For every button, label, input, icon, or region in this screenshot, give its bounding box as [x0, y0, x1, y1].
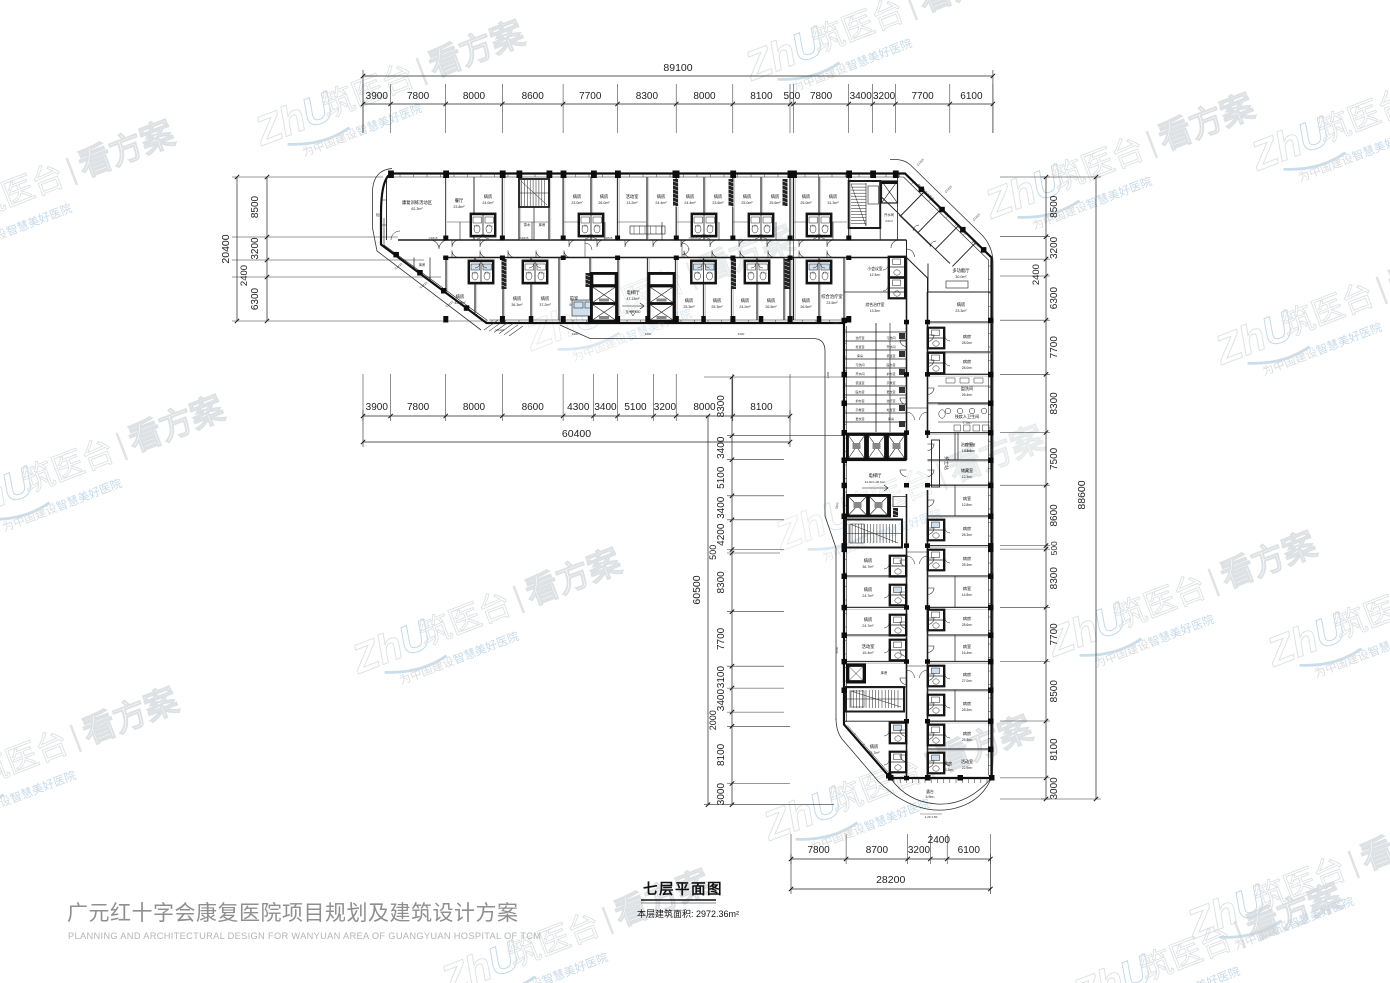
svg-text:8000: 8000 [693, 402, 716, 413]
svg-text:3.7m: 3.7m [474, 224, 480, 228]
svg-text:康复训练活动区: 康复训练活动区 [402, 199, 433, 206]
svg-text:88600: 88600 [1076, 480, 1088, 509]
svg-text:病房: 病房 [963, 730, 971, 736]
svg-text:库房: 库房 [888, 416, 894, 421]
svg-text:至+26.450: 至+26.450 [626, 310, 641, 314]
svg-text:4.0m²: 4.0m² [885, 219, 893, 223]
svg-text:治疗室: 治疗室 [965, 442, 976, 447]
svg-text:3.7m: 3.7m [487, 224, 493, 228]
svg-text:24.4m²: 24.4m² [655, 201, 667, 205]
svg-text:23.5m²: 23.5m² [826, 301, 838, 305]
svg-text:病房: 病房 [829, 193, 838, 200]
svg-text:3.7m: 3.7m [695, 224, 701, 228]
svg-text:16.4m²: 16.4m² [962, 651, 973, 655]
svg-text:C1815: C1815 [990, 695, 994, 704]
svg-text:6300: 6300 [1049, 287, 1060, 310]
svg-text:4300: 4300 [567, 402, 590, 413]
svg-text:25.6m²: 25.6m² [769, 201, 781, 205]
svg-text:62.3m²: 62.3m² [411, 207, 423, 211]
svg-text:15.4m²: 15.4m² [862, 651, 874, 655]
svg-text:示教室: 示教室 [886, 380, 895, 385]
svg-text:37.2m²: 37.2m² [539, 303, 551, 307]
svg-text:7700: 7700 [911, 91, 934, 102]
svg-text:8700: 8700 [866, 845, 889, 856]
svg-text:阳台: 阳台 [376, 212, 382, 217]
svg-text:3400: 3400 [850, 91, 873, 102]
svg-text:病房: 病房 [714, 193, 723, 200]
svg-text:500: 500 [783, 91, 800, 102]
svg-text:茶水: 茶水 [524, 222, 531, 227]
svg-text:污洗间: 污洗间 [855, 362, 864, 367]
svg-text:病房: 病房 [963, 333, 971, 339]
svg-text:3900: 3900 [366, 91, 389, 102]
svg-text:8300: 8300 [716, 395, 727, 418]
svg-text:25.3m²: 25.3m² [683, 305, 695, 309]
svg-text:3400: 3400 [738, 332, 745, 336]
svg-text:2400: 2400 [928, 835, 951, 846]
svg-text:12.3m²: 12.3m² [870, 273, 881, 277]
svg-text:治疗室: 治疗室 [886, 398, 895, 403]
svg-text:病房: 病房 [963, 615, 971, 621]
svg-text:病室: 病室 [963, 585, 971, 591]
svg-text:5000: 5000 [835, 646, 839, 653]
svg-text:1.20 1.50: 1.20 1.50 [925, 815, 938, 819]
svg-text:7500: 7500 [1049, 447, 1060, 470]
svg-text:病房: 病房 [657, 193, 666, 200]
svg-text:28.3m²: 28.3m² [962, 563, 973, 567]
svg-text:5100: 5100 [716, 466, 727, 489]
svg-text:更衣室: 更衣室 [886, 389, 895, 394]
svg-text:8300: 8300 [716, 571, 727, 594]
svg-text:C1815: C1815 [429, 236, 438, 240]
svg-text:电梯厅: 电梯厅 [869, 472, 883, 479]
svg-text:7.7m²: 7.7m² [963, 421, 973, 425]
svg-text:2400: 2400 [239, 265, 250, 286]
svg-text:24.7m²: 24.7m² [862, 594, 874, 598]
svg-text:PLANNING AND ARCHITECTURAL DES: PLANNING AND ARCHITECTURAL DESIGN FOR WA… [68, 931, 541, 941]
svg-text:3.7m: 3.7m [752, 224, 758, 228]
svg-text:M1021: M1021 [495, 328, 505, 332]
svg-text:3400: 3400 [716, 689, 727, 712]
svg-text:病房: 病房 [600, 193, 609, 200]
svg-text:36.3m²: 36.3m² [511, 303, 523, 307]
svg-text:库房: 库房 [857, 353, 863, 358]
svg-text:30.0m²: 30.0m² [955, 275, 967, 279]
svg-text:8300: 8300 [1049, 567, 1060, 590]
svg-text:8000: 8000 [693, 91, 716, 102]
svg-text:3.7m: 3.7m [526, 271, 532, 275]
svg-text:3400: 3400 [716, 496, 727, 519]
svg-text:28.3m²: 28.3m² [962, 533, 973, 537]
svg-text:8300: 8300 [1049, 392, 1060, 415]
svg-text:病房: 病房 [864, 586, 873, 593]
svg-text:开水间: 开水间 [884, 212, 894, 217]
svg-text:3100: 3100 [716, 666, 727, 689]
svg-text:8100: 8100 [1049, 738, 1060, 761]
svg-text:25.3m²: 25.3m² [711, 305, 723, 309]
svg-text:24.4m²: 24.4m² [684, 201, 696, 205]
svg-text:病房: 病房 [541, 295, 550, 302]
svg-text:26.5m²: 26.5m² [800, 305, 812, 309]
svg-text:病房: 病房 [963, 525, 971, 531]
svg-text:23.8m²: 23.8m² [453, 205, 465, 209]
svg-text:病房: 病房 [870, 743, 879, 750]
svg-text:库房: 库房 [539, 222, 546, 227]
svg-text:3.7m: 3.7m [707, 271, 713, 275]
svg-text:7700: 7700 [716, 627, 727, 650]
svg-text:2400: 2400 [1031, 264, 1042, 285]
svg-text:28.0m²: 28.0m² [962, 366, 973, 370]
svg-text:500: 500 [1049, 541, 1059, 555]
svg-text:污洗间: 污洗间 [886, 335, 895, 340]
svg-text:护士站: 护士站 [943, 456, 950, 470]
svg-text:7700: 7700 [1049, 336, 1060, 359]
svg-text:8300: 8300 [636, 91, 659, 102]
svg-text:电梯厅: 电梯厅 [627, 289, 641, 296]
svg-text:7800: 7800 [407, 402, 430, 413]
svg-text:病房: 病房 [802, 193, 811, 200]
svg-text:7700: 7700 [1049, 623, 1060, 646]
svg-text:8600: 8600 [522, 91, 545, 102]
svg-text:26.0m²: 26.0m² [598, 201, 610, 205]
svg-text:七层平面图: 七层平面图 [643, 881, 723, 898]
svg-text:14.3m²: 14.3m² [965, 449, 975, 453]
svg-text:库房: 库房 [881, 670, 888, 675]
svg-text:25.0m²: 25.0m² [800, 201, 812, 205]
svg-text:病房: 病房 [484, 193, 493, 200]
svg-text:8500: 8500 [1049, 680, 1060, 703]
svg-text:3.7m: 3.7m [810, 271, 816, 275]
svg-text:C1815: C1815 [990, 565, 994, 574]
svg-text:500: 500 [708, 545, 718, 560]
svg-text:89100: 89100 [663, 62, 692, 74]
svg-text:1800: 1800 [833, 321, 840, 325]
svg-text:3.7m: 3.7m [708, 224, 714, 228]
svg-text:3.7m: 3.7m [765, 224, 771, 228]
svg-text:病房: 病房 [686, 193, 695, 200]
svg-text:病房: 病房 [963, 358, 971, 364]
svg-text:餐厅: 餐厅 [455, 197, 464, 204]
svg-text:3400: 3400 [572, 332, 579, 336]
svg-text:护办室: 护办室 [855, 398, 864, 403]
svg-text:8000: 8000 [463, 91, 486, 102]
svg-text:3200: 3200 [873, 91, 896, 102]
svg-text:14.8m²: 14.8m² [962, 593, 973, 597]
svg-text:60400: 60400 [562, 428, 591, 440]
svg-text:护办室: 护办室 [886, 371, 895, 376]
svg-text:20400: 20400 [220, 234, 232, 263]
svg-text:病房: 病房 [771, 193, 780, 200]
svg-text:3.7m: 3.7m [472, 271, 478, 275]
svg-text:3.7m: 3.7m [539, 271, 545, 275]
svg-text:病室: 病室 [963, 495, 971, 501]
svg-text:3.7m: 3.7m [761, 271, 767, 275]
svg-text:12.8m²: 12.8m² [962, 503, 973, 507]
svg-text:7700: 7700 [579, 91, 602, 102]
svg-text:处置室: 处置室 [886, 407, 895, 412]
svg-text:1800: 1800 [658, 321, 665, 325]
svg-text:28.6m²: 28.6m² [962, 623, 973, 627]
svg-text:25.0m²: 25.0m² [741, 201, 753, 205]
svg-text:23.6m²: 23.6m² [712, 201, 724, 205]
svg-text:病房: 病房 [713, 297, 722, 304]
svg-text:病房: 病房 [456, 293, 465, 300]
svg-text:综合治疗室: 综合治疗室 [821, 293, 843, 300]
svg-text:24.2m²: 24.2m² [739, 305, 751, 309]
svg-text:2400: 2400 [826, 371, 830, 378]
svg-text:病房: 病房 [864, 616, 873, 623]
svg-text:8500: 8500 [1049, 195, 1060, 218]
svg-text:26.5m²: 26.5m² [765, 305, 777, 309]
svg-text:25.3m²: 25.3m² [962, 738, 973, 742]
svg-text:60500: 60500 [691, 575, 703, 604]
svg-text:8500: 8500 [250, 195, 261, 218]
svg-text:C1815: C1815 [604, 236, 613, 240]
svg-text:28.0m²: 28.0m² [962, 341, 973, 345]
svg-text:7800: 7800 [810, 91, 833, 102]
svg-text:病房: 病房 [944, 760, 952, 766]
svg-text:活动室: 活动室 [626, 193, 640, 200]
svg-text:病房: 病房 [957, 301, 966, 308]
svg-text:病房: 病房 [963, 555, 971, 561]
svg-text:医办室: 医办室 [855, 389, 864, 394]
svg-text:值班室: 值班室 [855, 380, 864, 385]
svg-text:6300: 6300 [250, 287, 261, 310]
svg-text:3000: 3000 [716, 783, 727, 806]
svg-text:8600: 8600 [1049, 504, 1060, 527]
svg-text:35.7m²: 35.7m² [868, 751, 880, 755]
svg-text:病室: 病室 [963, 643, 971, 649]
svg-text:3.7m: 3.7m [485, 271, 491, 275]
svg-text:病房: 病房 [963, 671, 971, 677]
svg-text:处置室: 处置室 [855, 344, 864, 349]
svg-text:病房: 病房 [685, 297, 694, 304]
svg-text:残疾人卫生间: 残疾人卫生间 [955, 413, 980, 419]
svg-text:3400: 3400 [716, 436, 727, 459]
svg-text:露台: 露台 [926, 789, 934, 794]
svg-text:13.3m²: 13.3m² [870, 309, 881, 313]
svg-text:C1815: C1815 [689, 236, 698, 240]
svg-text:12.3m²: 12.3m² [962, 475, 973, 479]
svg-text:多功能厅: 多功能厅 [952, 267, 970, 274]
svg-text:6100: 6100 [960, 91, 983, 102]
svg-text:8600: 8600 [522, 402, 545, 413]
svg-text:3200: 3200 [250, 237, 261, 260]
svg-text:31.3m²: 31.3m² [827, 201, 839, 205]
svg-text:22.9m²: 22.9m² [962, 766, 973, 770]
svg-text:病房: 病房 [513, 295, 522, 302]
svg-text:3.7m: 3.7m [810, 224, 816, 228]
svg-text:23.0m²: 23.0m² [571, 201, 583, 205]
svg-text:库房: 库房 [419, 262, 425, 267]
svg-text:3.7m: 3.7m [823, 271, 829, 275]
svg-text:7800: 7800 [407, 91, 430, 102]
svg-text:27.0m²: 27.0m² [962, 679, 973, 683]
svg-text:24.7m²: 24.7m² [862, 624, 874, 628]
svg-text:3200: 3200 [1049, 236, 1060, 259]
svg-text:医办室: 医办室 [886, 362, 895, 367]
svg-text:41.0m²+36.6m²: 41.0m²+36.6m² [865, 480, 885, 484]
svg-text:6100: 6100 [958, 845, 981, 856]
svg-text:值班室: 值班室 [886, 353, 895, 358]
svg-text:23.3m²: 23.3m² [943, 768, 954, 772]
svg-text:45.9m²: 45.9m² [454, 301, 466, 305]
svg-text:病房: 病房 [802, 297, 811, 304]
svg-text:36.7m²: 36.7m² [862, 565, 874, 569]
svg-text:更衣室: 更衣室 [855, 416, 864, 421]
svg-text:8000: 8000 [463, 402, 486, 413]
svg-text:47.13m²: 47.13m² [626, 297, 640, 301]
svg-text:26.4m²: 26.4m² [962, 393, 973, 397]
svg-text:28.3m²: 28.3m² [962, 708, 973, 712]
svg-text:23.3m²: 23.3m² [955, 309, 967, 313]
svg-text:病房: 病房 [767, 297, 776, 304]
svg-text:5100: 5100 [624, 402, 647, 413]
svg-text:28200: 28200 [876, 874, 905, 886]
svg-text:3.7m: 3.7m [694, 271, 700, 275]
svg-text:3.7m: 3.7m [823, 224, 829, 228]
svg-text:病房: 病房 [963, 700, 971, 706]
svg-text:24.0m²: 24.0m² [482, 201, 494, 205]
svg-text:本层建筑面积: 2972.36m²: 本层建筑面积: 2972.36m² [637, 908, 739, 919]
svg-text:3.7m: 3.7m [595, 224, 601, 228]
svg-text:C1815: C1815 [520, 236, 529, 240]
svg-text:综合治疗室: 综合治疗室 [866, 302, 885, 307]
svg-text:C1815: C1815 [990, 325, 994, 334]
svg-text:3000: 3000 [1049, 777, 1060, 800]
svg-text:储藏室: 储藏室 [961, 467, 973, 473]
svg-text:治疗室: 治疗室 [855, 335, 864, 340]
svg-text:8100: 8100 [750, 91, 773, 102]
svg-text:广元红十字会康复医院项目规划及建筑设计方案: 广元红十字会康复医院项目规划及建筑设计方案 [67, 902, 519, 925]
svg-text:开水间: 开水间 [855, 371, 864, 376]
svg-text:4200: 4200 [716, 523, 727, 546]
svg-text:3400: 3400 [645, 332, 652, 336]
svg-text:8100: 8100 [716, 743, 727, 766]
svg-text:3400: 3400 [594, 402, 617, 413]
svg-text:病房: 病房 [741, 297, 750, 304]
svg-text:小会议室: 小会议室 [867, 266, 882, 271]
svg-text:病房: 病房 [573, 193, 582, 200]
svg-text:2000: 2000 [708, 710, 718, 730]
svg-text:示教室: 示教室 [855, 407, 864, 412]
svg-text:13.2m²: 13.2m² [626, 201, 638, 205]
svg-text:3.7m: 3.7m [748, 271, 754, 275]
svg-text:活动室: 活动室 [862, 643, 876, 650]
svg-text:3200: 3200 [908, 845, 931, 856]
svg-text:3.7m: 3.7m [582, 224, 588, 228]
svg-text:8100: 8100 [750, 402, 773, 413]
svg-text:C1815: C1815 [990, 445, 994, 454]
svg-text:开水间: 开水间 [886, 344, 895, 349]
svg-text:病房: 病房 [743, 193, 752, 200]
svg-text:3200: 3200 [654, 402, 677, 413]
svg-text:3900: 3900 [366, 402, 389, 413]
svg-text:7800: 7800 [807, 845, 830, 856]
svg-text:活动室: 活动室 [961, 758, 973, 764]
svg-text:病房: 病房 [864, 557, 873, 564]
svg-text:6.9m²: 6.9m² [926, 795, 936, 799]
